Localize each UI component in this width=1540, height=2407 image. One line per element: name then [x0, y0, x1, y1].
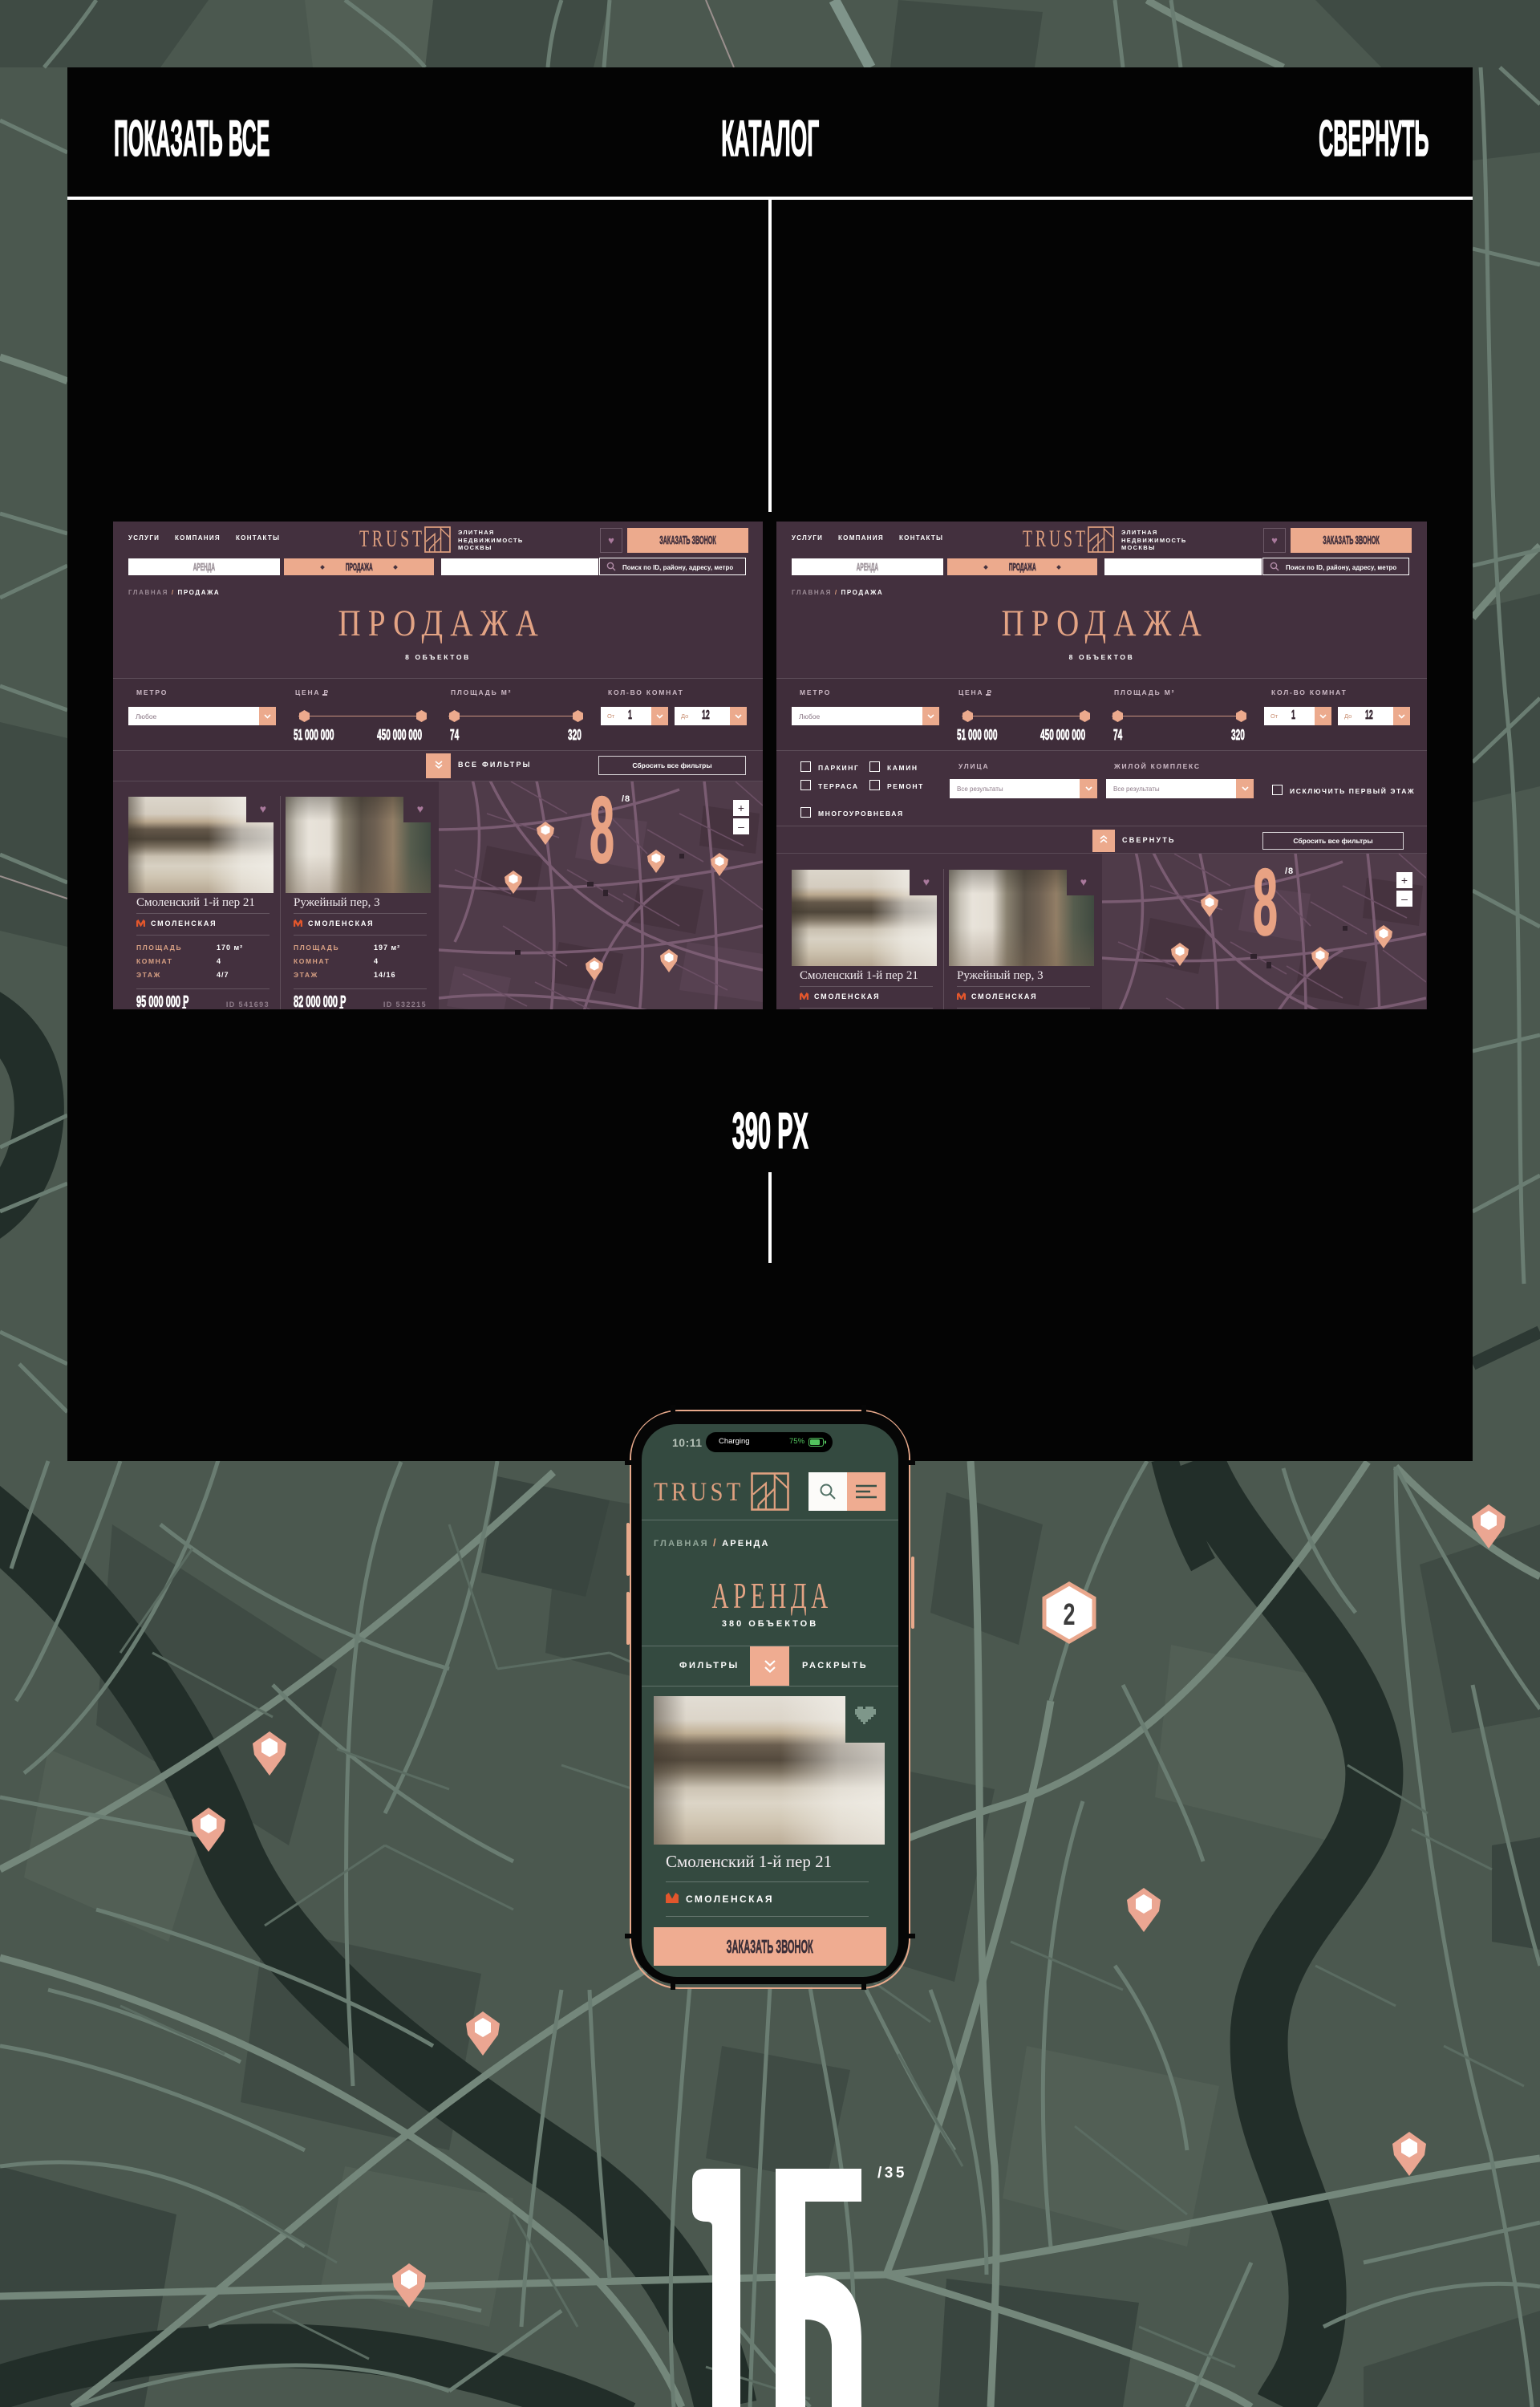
svg-text:2: 2	[1064, 1598, 1076, 1632]
